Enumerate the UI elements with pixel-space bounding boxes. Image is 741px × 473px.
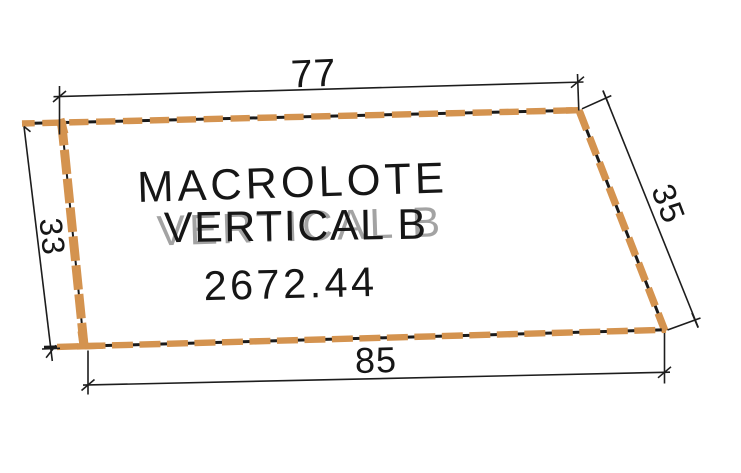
svg-text:77: 77 <box>290 52 337 97</box>
svg-text:35: 35 <box>644 179 692 228</box>
svg-text:85: 85 <box>354 339 397 381</box>
svg-text:33: 33 <box>32 216 72 257</box>
svg-text:2672.44: 2672.44 <box>203 258 378 309</box>
svg-text:VERTICAL B: VERTICAL B <box>164 201 428 253</box>
